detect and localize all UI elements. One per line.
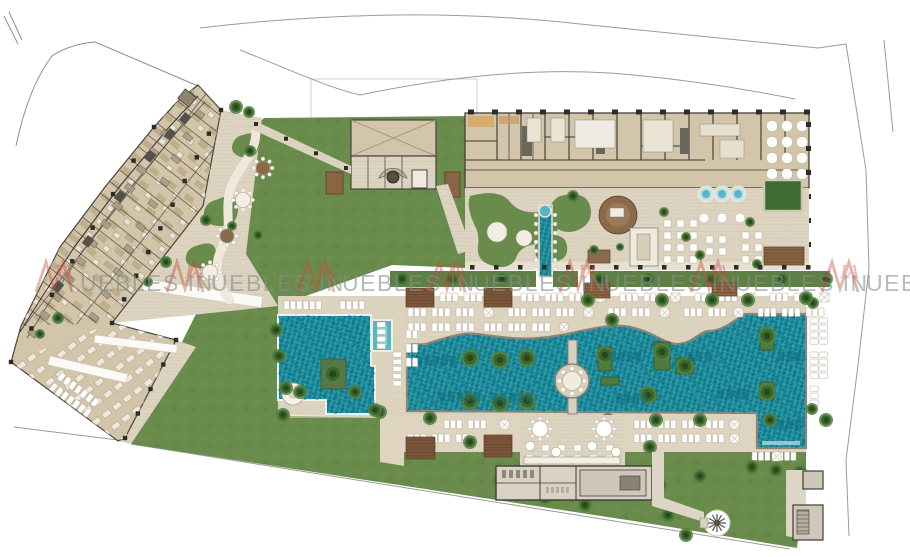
svg-text:UEBLES IN: UEBLES IN	[866, 270, 910, 296]
svg-text:IA: IA	[577, 261, 598, 283]
svg-text:IA: IA	[839, 261, 860, 283]
svg-text:IA: IA	[184, 261, 205, 283]
svg-text:IA: IA	[708, 261, 729, 283]
svg-text:IA: IA	[446, 261, 467, 283]
svg-text:IA: IA	[53, 261, 74, 283]
svg-text:IA: IA	[315, 261, 336, 283]
